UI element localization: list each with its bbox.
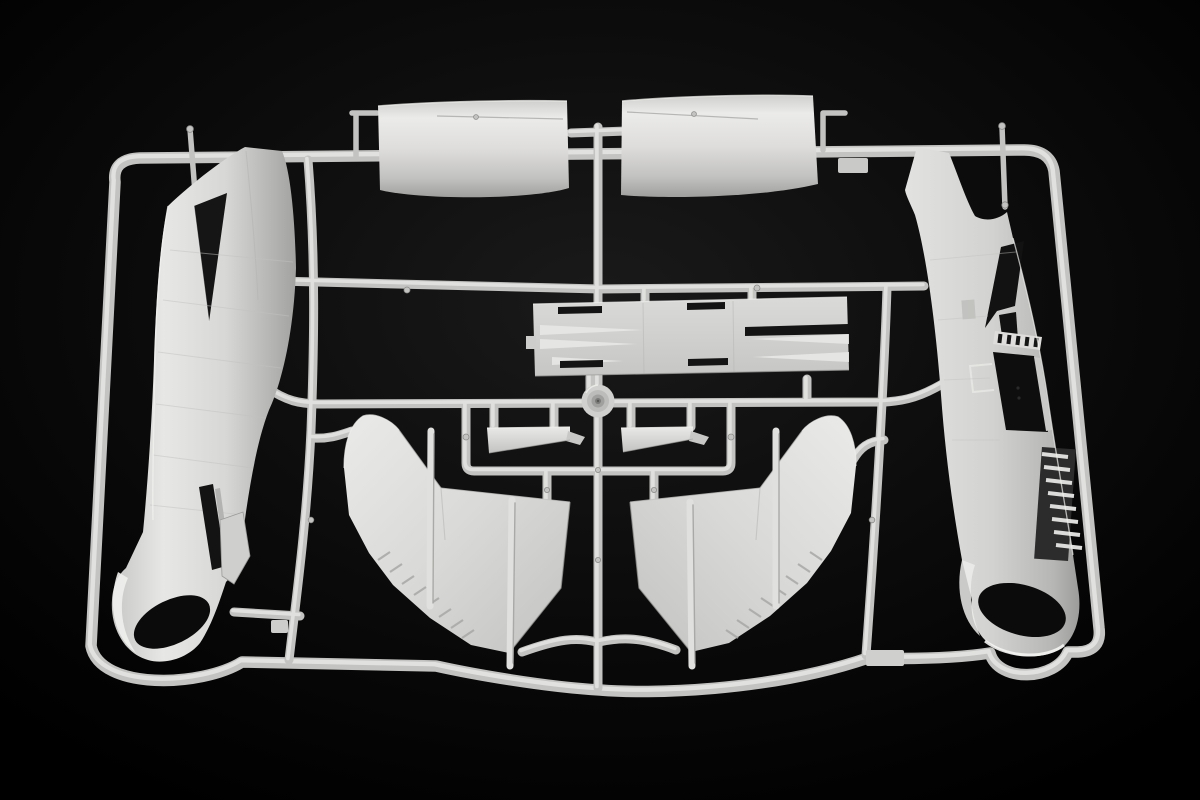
hub-disc [582, 385, 615, 418]
frame-tab [838, 158, 868, 173]
frame-tab [271, 620, 288, 633]
engine-cowling-right [621, 95, 818, 197]
photo-model-kit-sprue: Light-grey injection-moulded model aircr… [0, 0, 1200, 800]
small-recess [961, 300, 975, 320]
frame-tab [866, 650, 904, 666]
panel-edge-tab [526, 336, 536, 349]
wing-center-panel [526, 297, 849, 376]
engine-cowling-left [378, 101, 569, 198]
sprue-photo-canvas [0, 0, 1200, 800]
